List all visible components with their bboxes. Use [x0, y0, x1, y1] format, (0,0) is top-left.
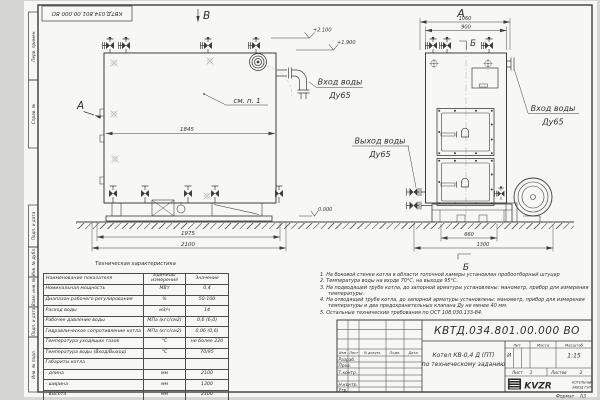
valve-icon [103, 37, 115, 53]
spec-value-cell: 0,6 (6,0) [186, 316, 229, 327]
elevation-label: +1.900 [337, 40, 356, 46]
pipe-label: Вход воды [318, 78, 363, 87]
valve-icon [440, 37, 452, 53]
scale-header: Масштаб [565, 342, 584, 347]
lifting-mark-icon [207, 58, 214, 65]
drawing-sheet: Перв. примен. Справ. № Подп. и дата Инв.… [0, 0, 600, 400]
valve-icon [426, 37, 438, 53]
rev-header: Изм [339, 351, 347, 355]
spec-row: Гидравлическое сопротивление котлаМПа (к… [44, 327, 229, 338]
pipe-label: Ду65 [541, 118, 563, 127]
drain-valve-icon [211, 186, 219, 203]
spec-table-title: Техническая характеристика [43, 261, 228, 267]
inlet-elbow-pipe [262, 66, 310, 99]
spec-unit-cell: МВт [144, 285, 186, 296]
sign-row-label: Утв. [339, 387, 348, 393]
dimension-label: 660 [464, 232, 474, 238]
note-item: 5. Остальные технические требования по О… [320, 310, 592, 316]
valve-icon [495, 186, 505, 200]
frame-label: Справ. № [31, 103, 36, 124]
sheet-value: 1 [530, 370, 533, 376]
frame-label: Подп. и дата [31, 307, 36, 336]
outlet-valve-icon [407, 188, 422, 196]
dimension-label: 1975 [181, 231, 195, 237]
scale-value: 1:15 [567, 353, 581, 360]
spec-row: Номинальная мощностьМВт0,4 [44, 285, 229, 296]
drain-valve-icon [184, 186, 192, 203]
spec-unit-cell: мм [144, 369, 186, 380]
spec-name-cell: Температура уходящих газов [44, 337, 144, 348]
frame-label: Подп. и дата [31, 211, 36, 240]
pipe-label: Ду65 [328, 91, 350, 100]
fitting-mark-icon [430, 59, 439, 68]
company-name: ЗАВОД РЭП [572, 386, 592, 390]
lifting-mark-icon [112, 156, 119, 163]
spec-row: Расход водым3/ч14 [44, 306, 229, 317]
spec-name-cell: Габариты котла [44, 359, 144, 370]
outlet-valve-icon [407, 202, 422, 210]
pipe-label: Ду65 [368, 150, 390, 159]
valve-icon [249, 37, 261, 53]
spec-unit-cell: мм [144, 380, 186, 391]
technical-notes: 1. На боковой стенке котла в области топ… [320, 272, 592, 316]
rev-header: N докум. [364, 351, 381, 355]
valve-icon [482, 37, 494, 53]
spec-row: Температура уходящих газов°Сне более 220 [44, 337, 229, 348]
drain-valve-icon [141, 186, 149, 203]
spec-unit-cell: МПа (кгс/см2) [144, 316, 186, 327]
stamp-doc-number: КВТД.034.801.00.000 ВО [51, 10, 122, 16]
dimension-label: 1060 [459, 16, 472, 22]
lit-header: Лит. [512, 342, 522, 347]
spec-row: - высотамм2100 [44, 390, 229, 400]
callout-label: см. п. 1 [233, 97, 260, 105]
dimension-label: 900 [461, 25, 471, 31]
product-title: по техническому заданию [422, 361, 505, 368]
spec-value-cell: 50-100 [186, 295, 229, 306]
spec-header-cell: Наименование показателя [44, 274, 144, 285]
spec-value-cell: 0,06 (0,6) [186, 327, 229, 338]
spec-name-cell: Рабочее давление воды [44, 316, 144, 327]
valve-icon [119, 37, 131, 53]
format-label: Формат [556, 394, 575, 400]
spec-name-cell: Диапазон рабочего регулирования [44, 295, 144, 306]
control-panel [472, 68, 498, 88]
spec-name-cell: Расход воды [44, 306, 144, 317]
blower-fan [506, 178, 552, 222]
spec-row: - длинамм2100 [44, 369, 229, 380]
spec-header-row: Наименование показателя Единицы измерени… [44, 274, 229, 285]
valve-icon [201, 37, 213, 53]
sign-row-label: Н.контр. [339, 382, 358, 388]
lifting-mark-icon [111, 60, 118, 67]
spec-value-cell: 2100 [186, 390, 229, 400]
spec-value-cell: 2100 [186, 369, 229, 380]
frame-label: Взам. инв. № [31, 277, 36, 306]
spec-unit-cell: МПа (кгс/см2) [144, 327, 186, 338]
spec-row: - ширинамм1300 [44, 380, 229, 391]
note-item: 4. На отводящей трубе котла, до запорной… [320, 297, 592, 309]
spec-name-cell: Гидравлическое сопротивление котла [44, 327, 144, 338]
rev-header: Подп. [390, 351, 401, 355]
outlet-flange-icon [250, 54, 267, 71]
dimension-label: 2100 [181, 242, 195, 248]
dimension-label: 1300 [477, 242, 490, 248]
spec-value-cell: 0,4 [186, 285, 229, 296]
spec-header-cell: Единицы измерения [144, 274, 186, 285]
furnace-door [437, 109, 494, 156]
spec-name-cell: - ширина [44, 380, 144, 391]
frame-label: Инв. № дубл. [31, 248, 36, 277]
spec-table: Наименование показателя Единицы измерени… [43, 273, 228, 392]
format-value: А3 [579, 394, 586, 400]
base-frame [432, 204, 512, 222]
sheets-label: Листов [550, 370, 567, 375]
spec-row: Рабочее давление водыМПа (кгс/см2)0,6 (6… [44, 316, 229, 327]
company-logo-text: KVZR [524, 382, 551, 392]
sign-row-label: Пров. [339, 363, 352, 369]
spec-unit-cell: м3/ч [144, 306, 186, 317]
spec-name-cell: Температура воды (Вход/Выход) [44, 348, 144, 359]
mass-header: Масса [537, 342, 550, 347]
spec-unit-cell: мм [144, 390, 186, 400]
section-mark-label: Б [470, 39, 476, 49]
dimension-label: 1845 [180, 127, 194, 133]
view-arrow-label: А [76, 100, 84, 112]
sign-row-label: Разраб. [339, 357, 356, 363]
pipe-label: Выход воды [355, 137, 406, 146]
spec-value-cell: не более 220 [186, 337, 229, 348]
frame-label: Инв. № подл. [31, 350, 36, 379]
spec-value-cell: 70/95 [186, 348, 229, 359]
company-name: КОТЕЛЬНЫЙ [572, 380, 593, 385]
boiler-front-view [407, 37, 553, 222]
rev-header: Лист [348, 351, 359, 355]
spec-unit-cell: °С [144, 337, 186, 348]
elevation-label: 0.000 [318, 207, 332, 213]
inlet-flange [507, 58, 514, 71]
drain-valve-icon [109, 186, 117, 203]
spec-unit-cell [144, 359, 186, 370]
sheet-label: Лист [511, 370, 523, 375]
front-view-texts: А Б Б 1060 900 660 1300 Вход воды Ду65 В… [355, 7, 576, 273]
spec-name-cell: Номинальная мощность [44, 285, 144, 296]
note-item: 1. На боковой стенке котла в области топ… [320, 272, 592, 278]
sheets-value: 2 [580, 370, 583, 376]
rev-header: Дата [407, 351, 417, 355]
spec-unit-cell: % [144, 295, 186, 306]
elevation-label: +2.100 [313, 28, 332, 34]
note-item: 3. На подводящей трубе котла, до запорно… [320, 285, 592, 297]
product-title: Котел КВ-0,4 Д (ПТ) [432, 352, 494, 359]
spec-unit-cell: °С [144, 348, 186, 359]
spec-value-cell [186, 359, 229, 370]
pipe-label: Вход воды [531, 104, 576, 113]
spec-value-cell: 14 [186, 306, 229, 317]
frame-label: Перв. примен. [31, 30, 36, 61]
lifting-mark-icon [204, 193, 211, 200]
spec-row: Диапазон рабочего регулирования%50-100 [44, 295, 229, 306]
fitting-mark-icon [484, 59, 493, 68]
view-arrow-label: В [203, 10, 210, 22]
ash-door [437, 159, 494, 206]
note-item: 2. Температура воды на входе 70°С, на вы… [320, 278, 592, 284]
spec-row: Габариты котла [44, 359, 229, 370]
spec-name-cell: - высота [44, 390, 144, 400]
sign-row-label: Т.контр. [339, 370, 358, 376]
lifting-mark-icon [111, 111, 118, 118]
spec-name-cell: - длина [44, 369, 144, 380]
boiler-side-view [100, 37, 310, 221]
lit-value: И [507, 353, 511, 359]
spec-row: Температура воды (Вход/Выход)°С70/95 [44, 348, 229, 359]
doc-number: КВТД.034.801.00.000 ВО [434, 325, 580, 337]
spec-value-cell: 1300 [186, 380, 229, 391]
spec-header-cell: Значение [186, 274, 229, 285]
